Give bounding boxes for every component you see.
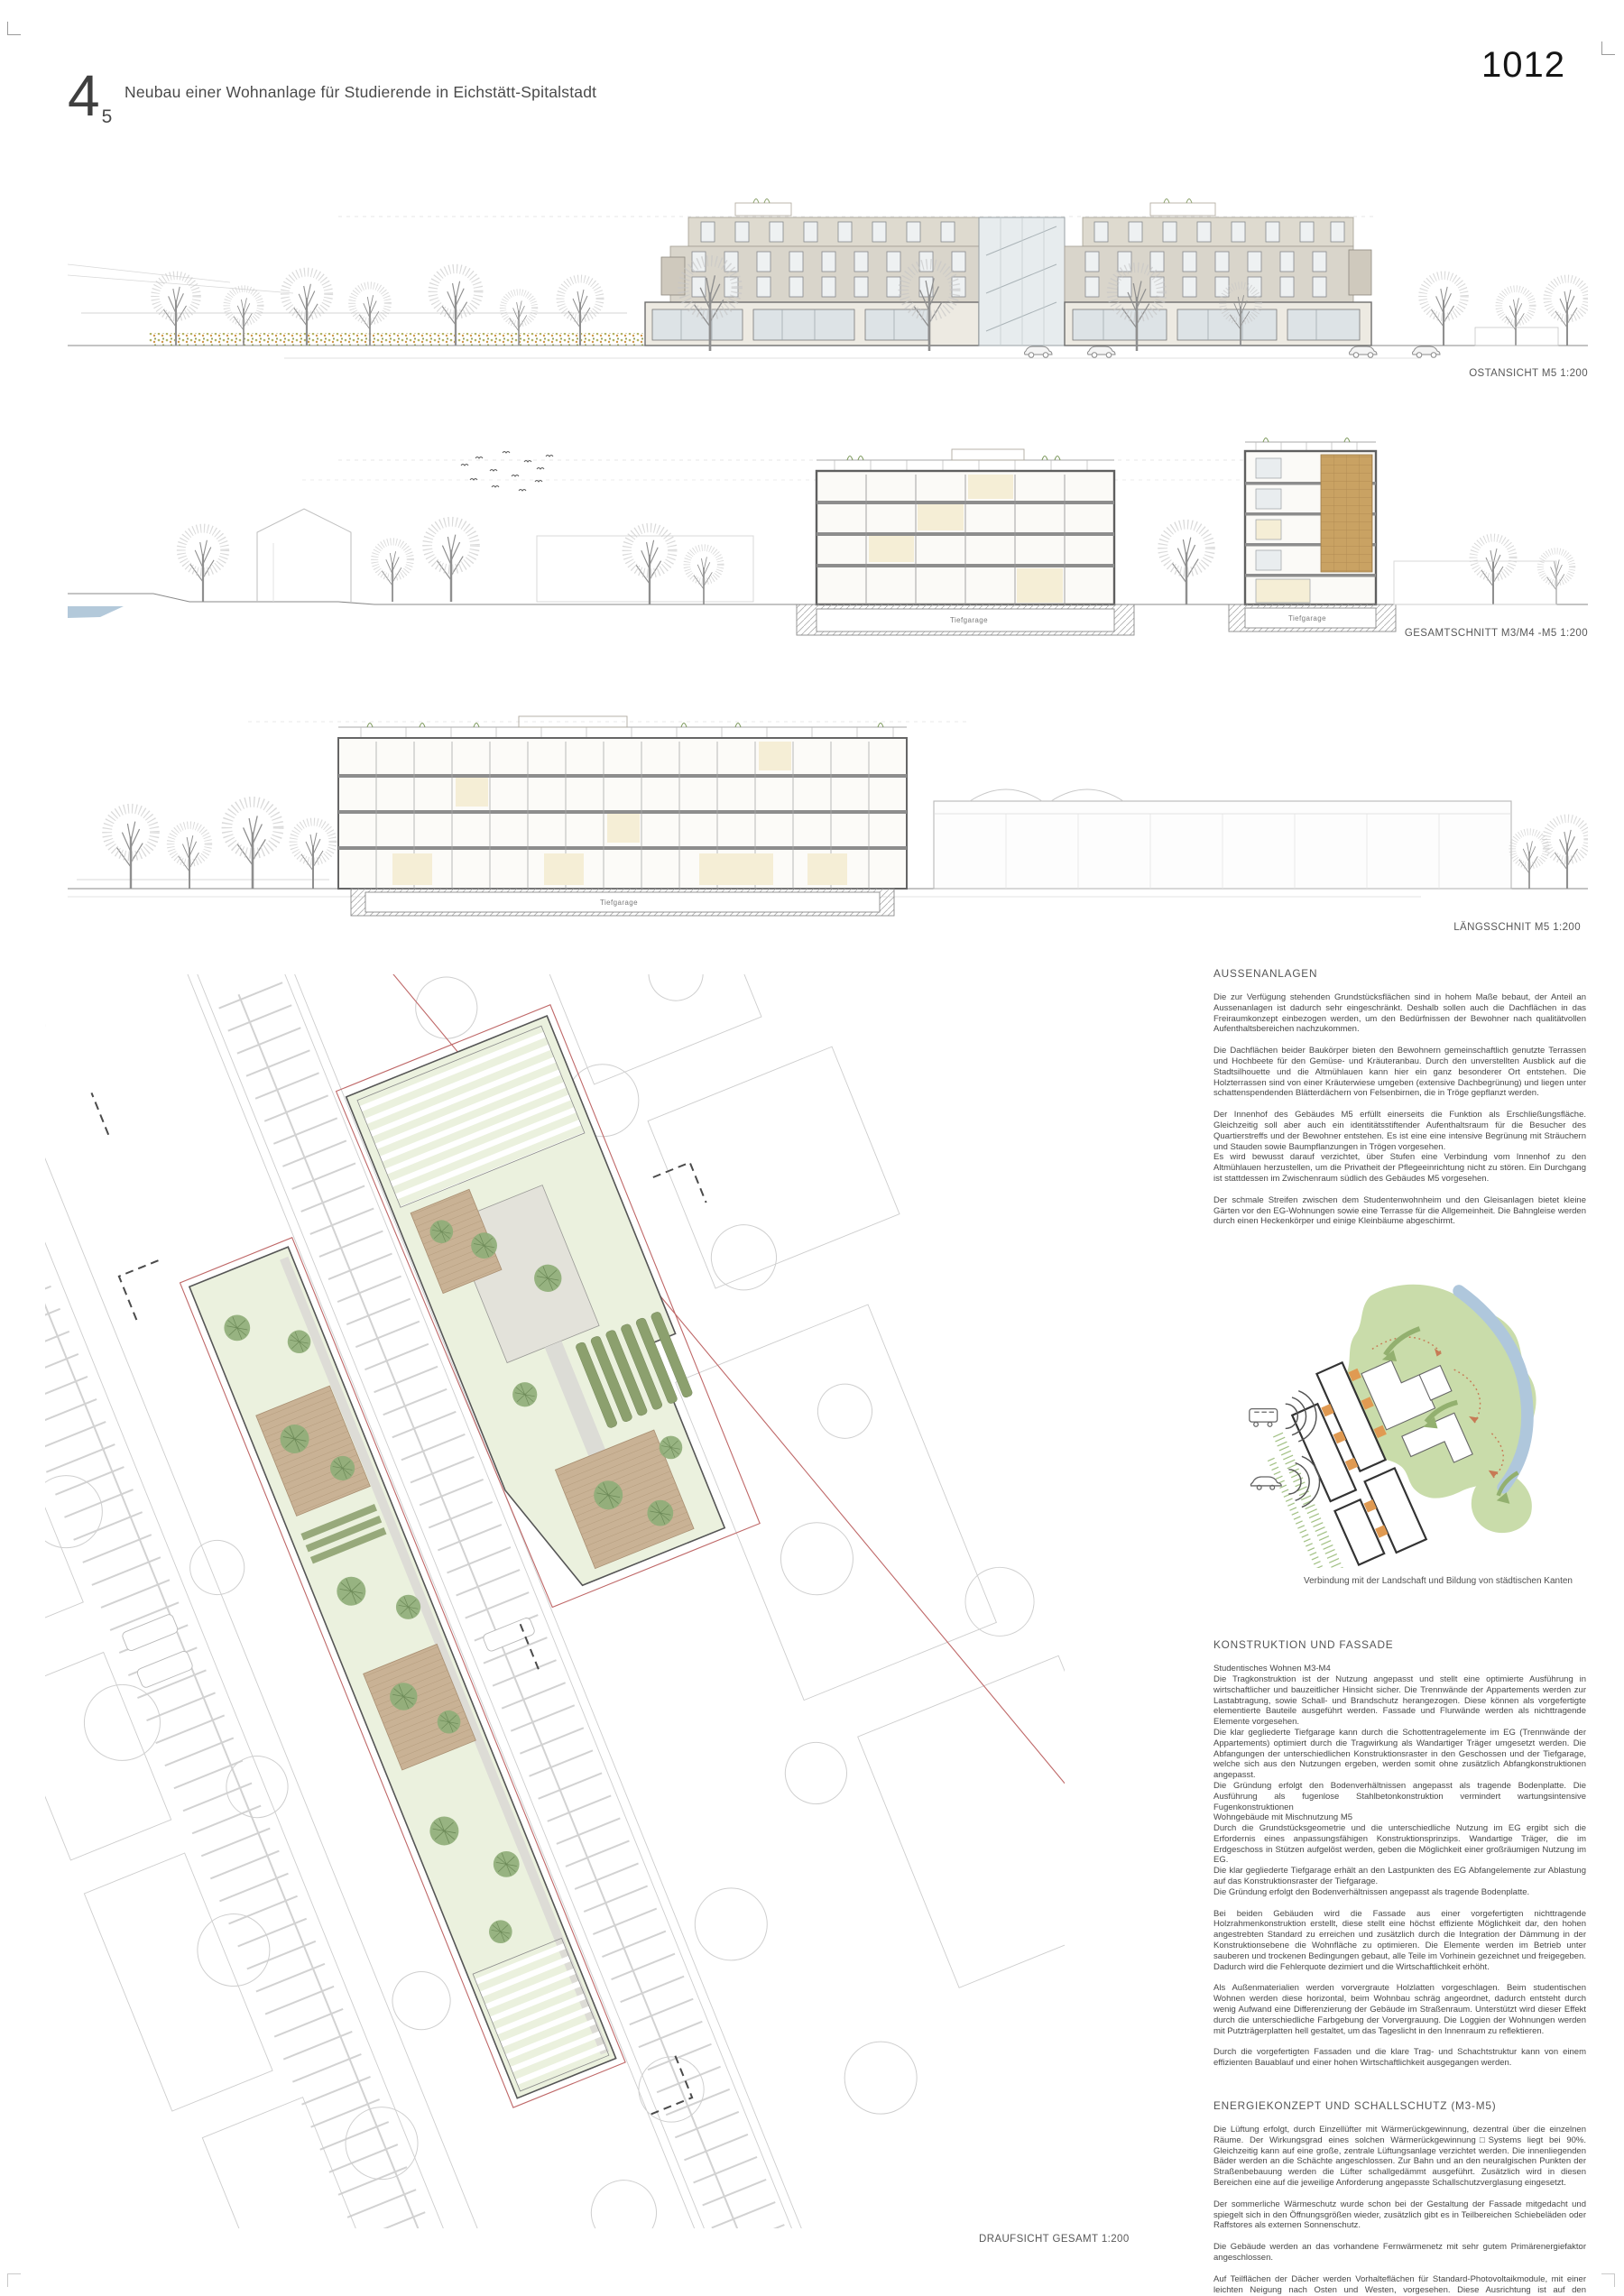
draufsicht-label: DRAUFSICHT GESAMT 1:200 xyxy=(979,2234,1130,2245)
text-column: AUSSENANLAGEN Die zur Verfügung stehende… xyxy=(1213,967,1586,2296)
elevation-buildings xyxy=(645,199,1371,346)
paragraph: Der sommerliche Wärmeschutz wurde schon … xyxy=(1213,2199,1586,2231)
sheet-number-big: 4 xyxy=(68,63,100,128)
long-section-building: Tiefgarage xyxy=(338,716,907,916)
draufsicht-drawing xyxy=(45,974,1065,2228)
bird-flock xyxy=(461,452,553,492)
crop-mark-top-left xyxy=(7,22,21,35)
laengsschnitt-drawing: Tiefgarage xyxy=(68,695,1588,934)
paragraph: Studentisches Wohnen M3-M4 Die Tragkonst… xyxy=(1213,1664,1586,1898)
section-heading: KONSTRUKTION UND FASSADE xyxy=(1213,1638,1586,1651)
presentation-board: 45 Neubau einer Wohnanlage für Studieren… xyxy=(0,0,1624,2296)
paragraph: Der Innenhof des Gebäudes M5 erfüllt ein… xyxy=(1213,1110,1586,1185)
tiefgarage-label-1: Tiefgarage xyxy=(950,616,988,624)
crop-mark-top-right xyxy=(1601,41,1615,55)
ostansicht-drawing xyxy=(68,167,1588,374)
paragraph: Die Dachflächen beider Baukörper bieten … xyxy=(1213,1046,1586,1099)
crop-mark-bottom-right xyxy=(1601,2273,1615,2287)
paragraph: Bei beiden Gebäuden wird die Fassade aus… xyxy=(1213,1909,1586,1973)
paragraph: Durch die vorgefertigten Fassaden und di… xyxy=(1213,2047,1586,2069)
section-heading: AUSSENANLAGEN xyxy=(1213,967,1586,980)
section-energiekonzept: ENERGIEKONZEPT UND SCHALLSCHUTZ (M3-M5) … xyxy=(1213,2099,1586,2296)
section-heading: ENERGIEKONZEPT UND SCHALLSCHUTZ (M3-M5) xyxy=(1213,2099,1586,2112)
gesamtschnitt-drawing: Tiefgarage Tiefgarage xyxy=(68,424,1588,650)
ostansicht-label: OSTANSICHT M5 1:200 xyxy=(1469,368,1588,379)
crop-mark-bottom-left xyxy=(7,2273,21,2287)
laengsschnitt-label: LÄNGSSCHNIT M5 1:200 xyxy=(1453,922,1581,933)
sheet-total: 5 xyxy=(102,106,113,127)
page-title: Neubau einer Wohnanlage für Studierende … xyxy=(125,83,596,102)
tiefgarage-label-2: Tiefgarage xyxy=(1288,614,1326,622)
concept-diagram xyxy=(1248,1261,1583,1568)
context-building-outline xyxy=(934,789,1511,889)
section-konstruktion: KONSTRUKTION UND FASSADE Studentisches W… xyxy=(1213,1638,1586,2069)
paragraph: Der schmale Streifen zwischen dem Studen… xyxy=(1213,1195,1586,1227)
panel-number: 1012 xyxy=(1481,45,1565,86)
paragraph: Als Außenmaterialien werden vorvergraute… xyxy=(1213,1983,1586,2036)
paragraph: Die Lüftung erfolgt, durch Einzellüfter … xyxy=(1213,2125,1586,2189)
paragraph: Die Gebäude werden an das vorhandene Fer… xyxy=(1213,2242,1586,2264)
section-building-m5: Tiefgarage xyxy=(1229,438,1396,632)
concept-caption: Verbindung mit der Landschaft und Bildun… xyxy=(1304,1576,1586,1586)
section-building-m3m4: Tiefgarage xyxy=(797,449,1134,635)
section-aussenanlagen: AUSSENANLAGEN Die zur Verfügung stehende… xyxy=(1213,967,1586,1227)
tiefgarage-label-3: Tiefgarage xyxy=(600,899,638,907)
paragraph: Auf Teilflächen der Dächer werden Vorhal… xyxy=(1213,2274,1586,2296)
sheet-number: 45 xyxy=(68,67,112,126)
paragraph: Die zur Verfügung stehenden Grundstücksf… xyxy=(1213,992,1586,1035)
gesamtschnitt-label: GESAMTSCHNITT M3/M4 -M5 1:200 xyxy=(1405,628,1588,639)
